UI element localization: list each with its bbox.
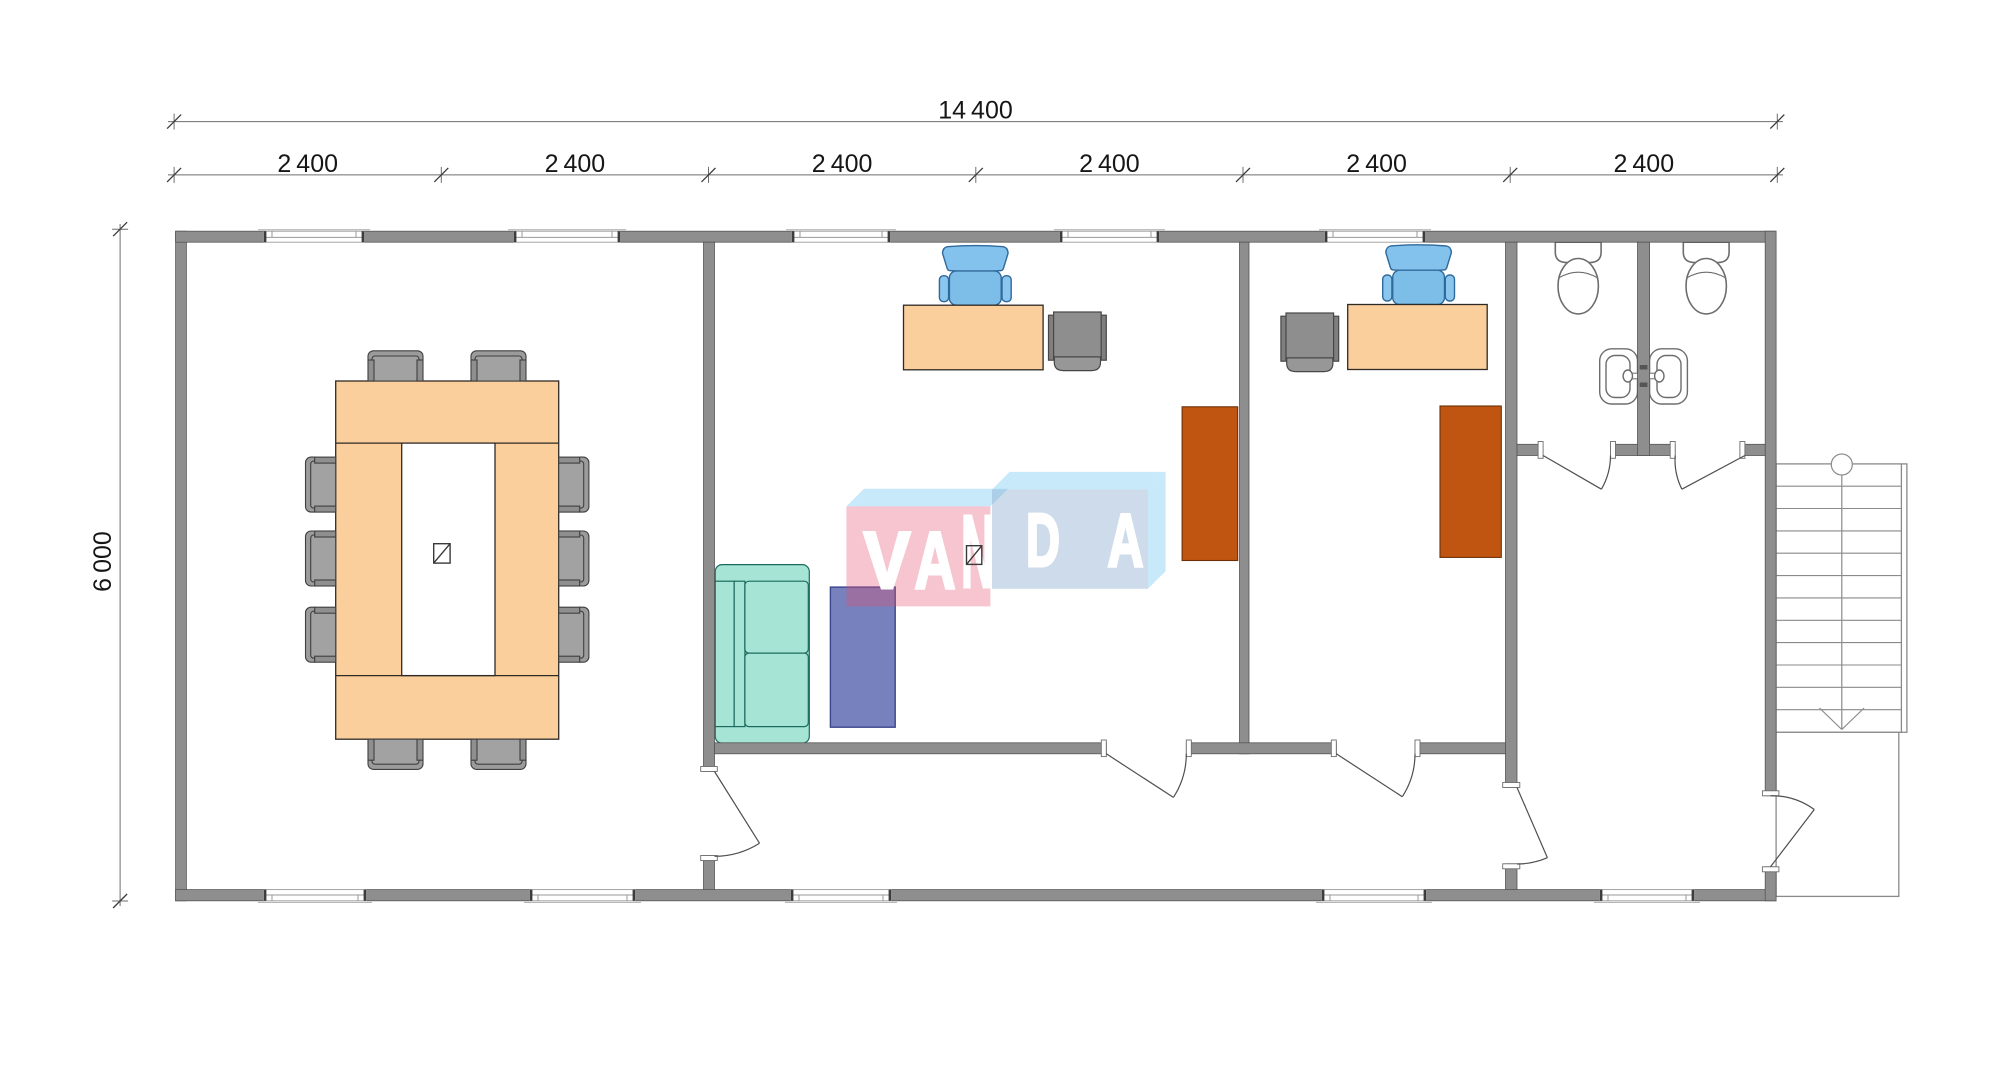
svg-text:14 400: 14 400 [938, 97, 1013, 125]
svg-text:2 400: 2 400 [545, 150, 606, 178]
svg-text:A: A [915, 516, 956, 606]
svg-text:D: D [1026, 498, 1060, 582]
svg-text:2 400: 2 400 [812, 150, 873, 178]
svg-text:2 400: 2 400 [277, 150, 338, 178]
svg-text:A: A [1108, 498, 1144, 582]
svg-text:6 000: 6 000 [89, 531, 117, 592]
svg-text:2 400: 2 400 [1346, 150, 1407, 178]
svg-text:2 400: 2 400 [1613, 150, 1674, 178]
svg-text:V: V [864, 516, 911, 606]
svg-text:2 400: 2 400 [1079, 150, 1140, 178]
